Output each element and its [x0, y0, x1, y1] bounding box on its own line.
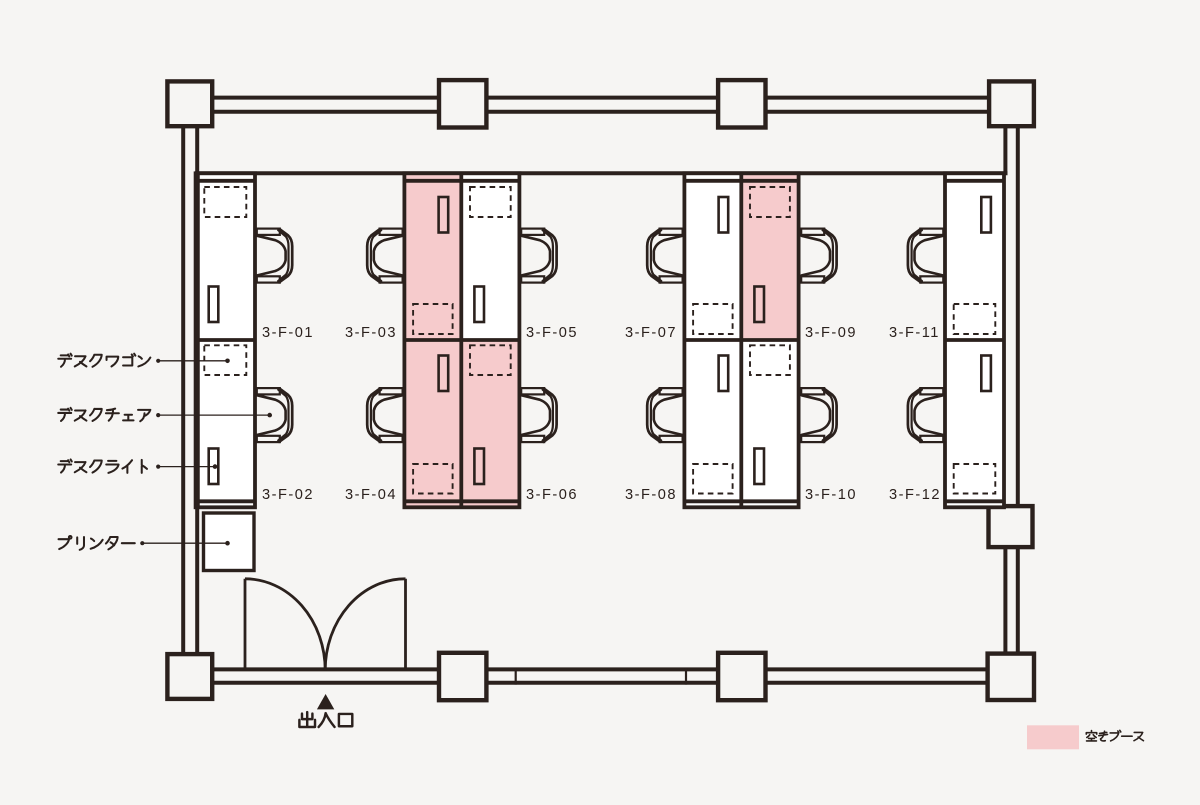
svg-text:3-F-02: 3-F-02: [262, 487, 314, 503]
svg-text:3-F-11: 3-F-11: [889, 325, 940, 341]
svg-text:3-F-03: 3-F-03: [345, 325, 397, 341]
svg-text:3-F-09: 3-F-09: [805, 325, 857, 341]
svg-text:3-F-12: 3-F-12: [889, 487, 941, 503]
svg-text:3-F-08: 3-F-08: [625, 487, 677, 503]
svg-text:3-F-01: 3-F-01: [262, 325, 314, 341]
svg-text:3-F-05: 3-F-05: [526, 325, 578, 341]
svg-text:3-F-10: 3-F-10: [805, 487, 857, 503]
svg-text:3-F-07: 3-F-07: [625, 325, 677, 341]
svg-text:3-F-06: 3-F-06: [526, 487, 578, 503]
svg-text:3-F-04: 3-F-04: [345, 487, 397, 503]
